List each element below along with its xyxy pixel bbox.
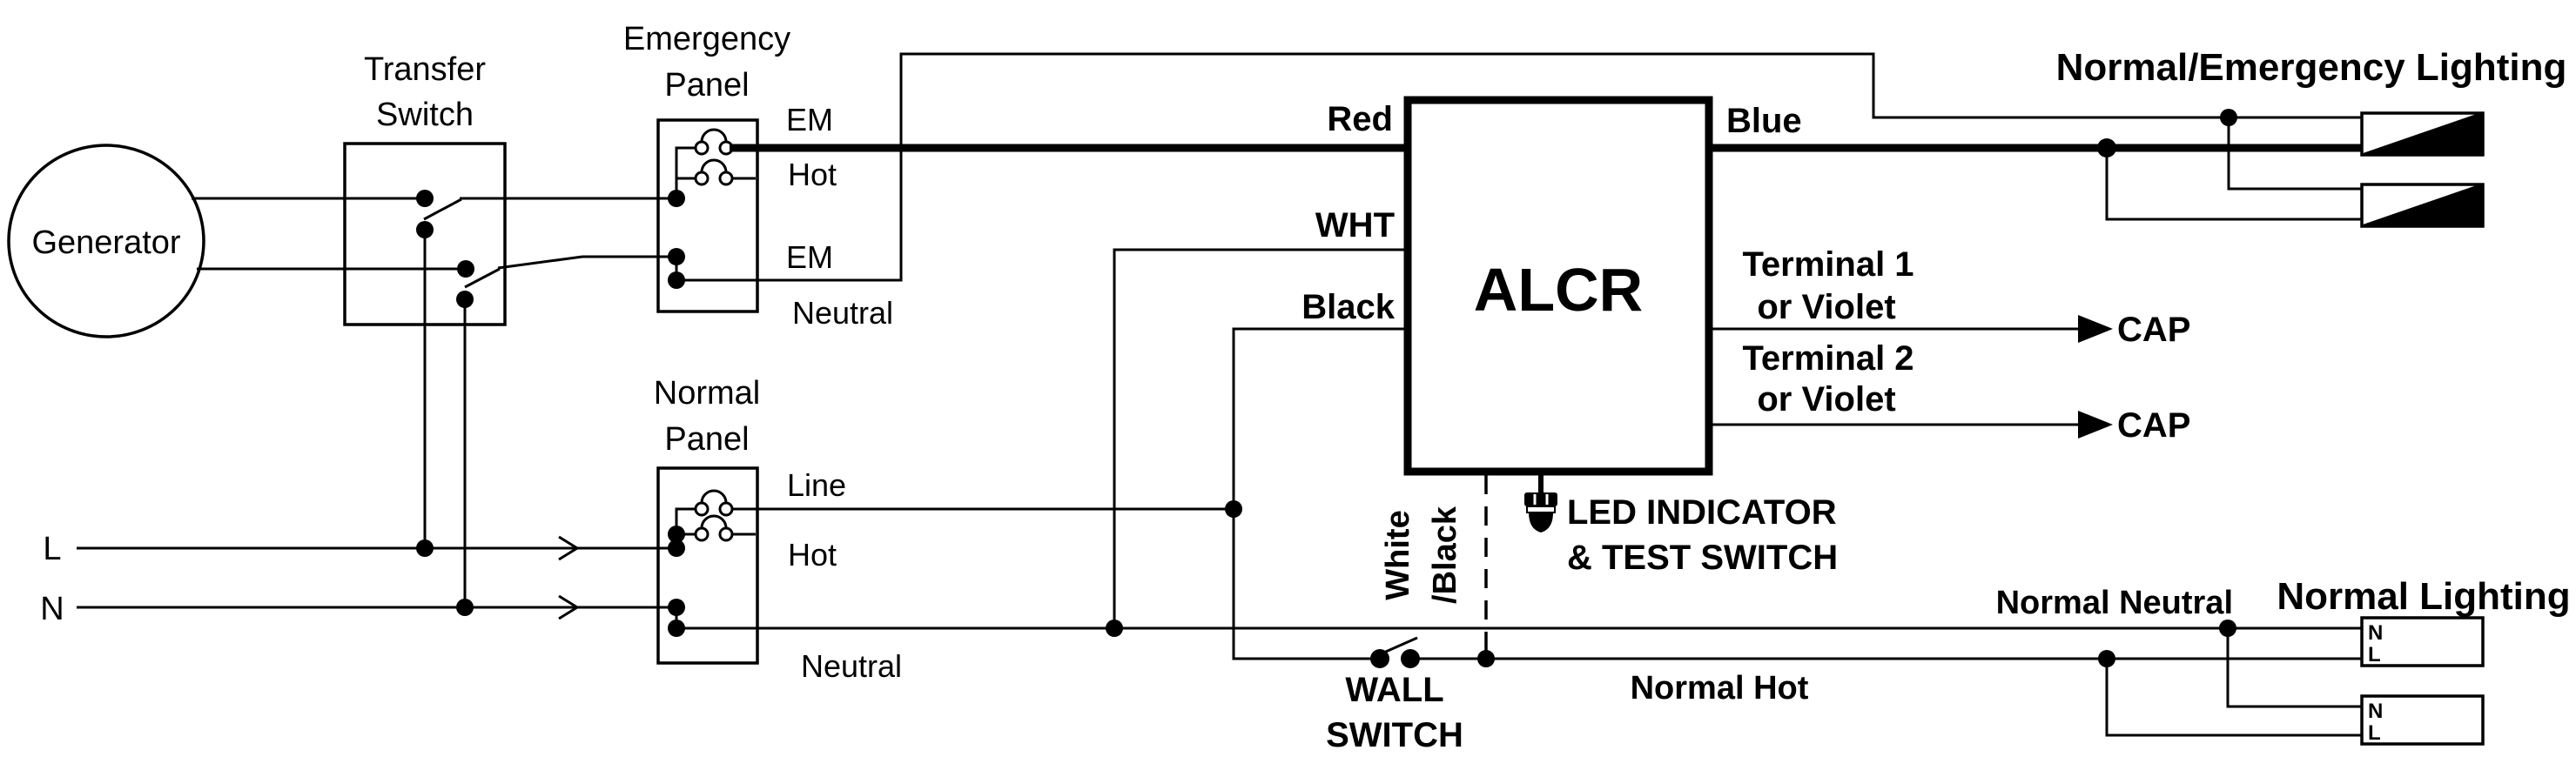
terminal2-label-1: Terminal 2 [1742,339,1914,378]
led-label-2: & TEST SWITCH [1567,539,1838,577]
switch-contact-dot [1401,649,1420,668]
led-test-switch-icon [1524,492,1557,533]
normal-panel-label-1: Normal [654,375,760,412]
normal-panel: Normal Panel Line Hot Neutral [654,375,902,684]
panel-neutral-label: Neutral [801,648,902,684]
led-indicator: LED INDICATOR & TEST SWITCH [1524,473,1838,577]
breaker-arc [702,491,726,503]
em-neutral-feed-wire [498,257,676,268]
breaker-arc [702,160,726,172]
red-wire-label: Red [1327,100,1393,138]
junction-dot [668,539,685,557]
neutral-n-label: N [40,591,64,627]
cap2-label: CAP [2117,406,2190,445]
breaker-contact [696,172,708,184]
emergency-lighting-title: Normal/Emergency Lighting [2056,46,2567,89]
wall-switch: WALL SWITCH [1326,638,1463,754]
emergency-panel-label-2: Panel [664,67,749,104]
generator: Generator [9,145,204,337]
terminal-2: Terminal 2 or Violet CAP [1709,339,2190,445]
black-wire [1234,329,1408,659]
emergency-fixture-2 [2362,184,2483,226]
led-label-1: LED INDICATOR [1567,493,1837,532]
junction-dot [1477,650,1495,667]
breaker-arc [702,516,726,528]
generator-label: Generator [31,224,180,261]
blue-wire-label: Blue [1726,102,1802,140]
diagram-canvas: Generator Transfer Switch L N Emerg [0,0,2576,777]
transfer-switch-label-1: Transfer [364,51,486,88]
terminal-1: Terminal 1 or Violet CAP [1709,245,2190,349]
fixture-l-label: L [2368,643,2381,666]
wiring-diagram: Generator Transfer Switch L N Emerg [0,0,2576,777]
transfer-switch-label-2: Switch [376,97,474,133]
normal-lighting-title: Normal Lighting [2277,575,2570,618]
terminal1-label-1: Terminal 1 [1742,245,1914,284]
black-wire-label: Black [1301,288,1395,326]
white-wire-label: White [1380,510,1416,599]
cap1-label: CAP [2117,311,2190,349]
wall-switch-label-2: SWITCH [1326,716,1463,754]
led-cap [1524,492,1557,506]
blue-branch [2107,148,2362,219]
junction-dot [416,539,434,557]
cap2-arrow-icon [2078,411,2113,439]
emergency-panel-label-1: Emergency [623,21,790,57]
normal-neutral-branch [2228,628,2362,707]
em-hot-label-1: EM [786,102,833,137]
normal-fixture-2: N L [2362,696,2483,745]
contact-dot [457,260,474,278]
breaker-contact [720,172,732,184]
breaker-contact [696,142,708,154]
emergency-fixture-1 [2362,113,2483,155]
terminal1-label-2: or Violet [1757,288,1895,326]
normal-hot-branch [2107,659,2362,735]
breaker-contact [720,528,732,540]
emergency-panel: Emergency Panel EM Hot EM Neutral [623,21,893,331]
em-neutral-label-2: Neutral [792,295,893,331]
breaker-arc [702,130,726,142]
utility-supply: L N [40,531,676,627]
fixture-n-label: N [2368,700,2383,723]
em-neutral-label-1: EM [786,239,833,275]
normal-neutral-label: Normal Neutral [1996,585,2233,621]
led-dome [1529,512,1553,533]
transfer-switch: Transfer Switch [192,51,676,607]
breaker-contact [696,503,708,515]
wall-switch-label-1: WALL [1345,671,1443,709]
line-l-label: L [43,531,61,567]
line-hot-label-1: Line [787,467,846,503]
em-neutral-branch [2229,117,2362,189]
line-hot-label-2: Hot [788,537,837,573]
wht-wire-label: WHT [1315,206,1395,244]
contact-dot [416,190,434,207]
normal-fixture-1: N L [2362,618,2483,666]
fixture-n-label: N [2368,621,2383,645]
breaker-contact [696,528,708,540]
alcr-label: ALCR [1474,256,1643,324]
led-band [1527,506,1555,512]
junction-dot [456,599,474,616]
normal-hot-label: Normal Hot [1631,670,1809,707]
junction-dot [668,190,685,207]
terminal2-label-2: or Violet [1757,380,1895,419]
em-hot-label-2: Hot [788,157,837,192]
normal-panel-label-2: Panel [664,421,749,458]
black-wire-label-rotated: /Black [1427,506,1463,604]
cap1-arrow-icon [2078,315,2113,343]
fixture-l-label: L [2368,721,2381,745]
alcr-module: ALCR [1408,100,1709,472]
breaker-contact [720,503,732,515]
